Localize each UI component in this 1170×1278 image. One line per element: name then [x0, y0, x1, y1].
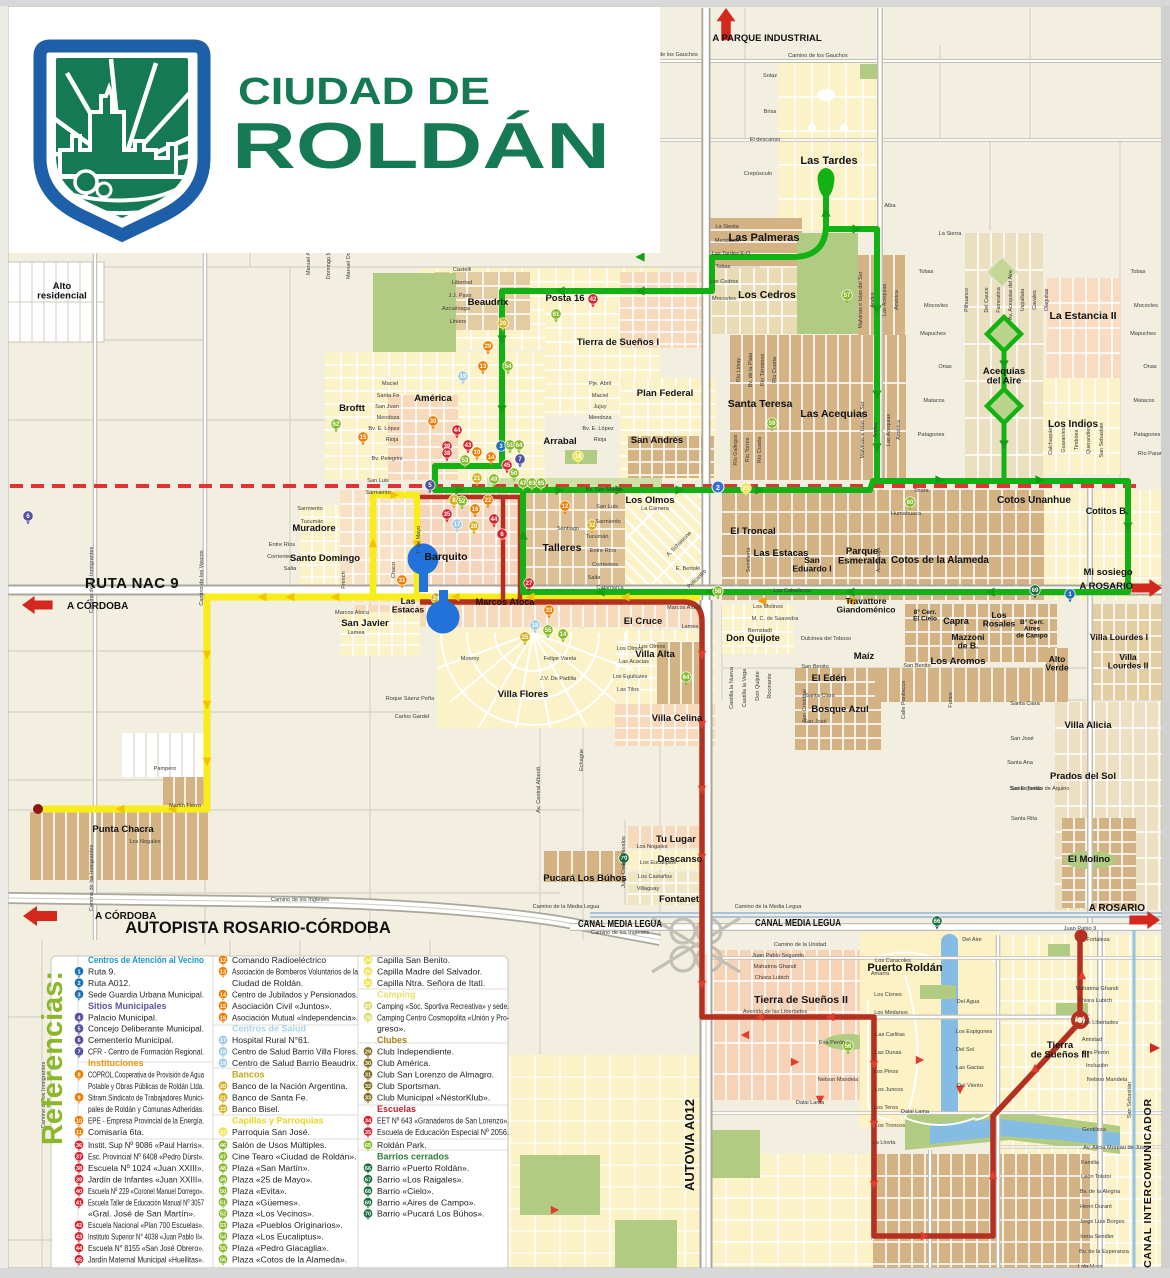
svg-text:15: 15 [360, 435, 367, 441]
svg-text:Chaco: Chaco [391, 562, 397, 578]
svg-text:Jardín de Infantes «Juan XXIII: Jardín de Infantes «Juan XXIII». [88, 1174, 204, 1184]
svg-text:Calchaquíes: Calchaquíes [1048, 425, 1054, 455]
svg-text:25: 25 [522, 635, 529, 641]
svg-text:13: 13 [220, 969, 226, 975]
svg-text:Escuela Nº 1024 «Juan XXIII».: Escuela Nº 1024 «Juan XXIII». [88, 1163, 204, 1173]
svg-text:37: 37 [76, 1154, 82, 1160]
svg-text:Centros de Salud: Centros de Salud [232, 1024, 306, 1034]
svg-text:Bv. Pelegrini: Bv. Pelegrini [372, 456, 403, 462]
svg-text:Cine Tearo «Ciudad de Roldán».: Cine Tearo «Ciudad de Roldán». [232, 1151, 357, 1161]
svg-text:Instit. Sup Nº 9086 «Paul Harr: Instit. Sup Nº 9086 «Paul Harris». [88, 1140, 204, 1150]
svg-text:16: 16 [472, 507, 479, 513]
svg-text:San Luis: San Luis [367, 478, 389, 484]
svg-text:1: 1 [77, 969, 80, 975]
svg-text:Club América.: Club América. [377, 1058, 431, 1068]
svg-text:Las Acequias: Las Acequias [800, 408, 867, 420]
svg-text:Acequiasdel Aire: Acequiasdel Aire [983, 366, 1025, 387]
svg-text:Monroy: Monroy [461, 656, 480, 662]
svg-text:66: 66 [365, 1166, 371, 1172]
svg-text:Santa Fe: Santa Fe [377, 393, 400, 399]
svg-text:Las Gacias: Las Gacias [956, 1065, 984, 1071]
svg-text:Bv. San Martín: Bv. San Martín [586, 487, 623, 493]
svg-text:Club Municipal «NéstorKlub».: Club Municipal «NéstorKlub». [377, 1092, 490, 1102]
svg-text:San Juan: San Juan [375, 404, 399, 410]
svg-text:20: 20 [220, 1084, 226, 1090]
svg-text:30: 30 [365, 1061, 371, 1067]
svg-text:Río Cuarta: Río Cuarta [772, 357, 778, 383]
svg-text:Alba: Alba [884, 203, 896, 209]
svg-text:Beaudrix: Beaudrix [468, 297, 509, 308]
svg-text:Pampero: Pampero [154, 766, 177, 772]
svg-text:Cotitos B.: Cotitos B. [1086, 506, 1129, 516]
svg-text:Fameatina: Fameatina [996, 287, 1002, 312]
svg-text:Bv. E. López: Bv. E. López [582, 426, 614, 432]
svg-text:Sitram.Sindicato de Trabajador: Sitram.Sindicato de Trabajadores Munici- [88, 1092, 204, 1102]
svg-text:Los Espigones: Los Espigones [956, 1029, 993, 1035]
svg-text:64: 64 [516, 443, 523, 449]
svg-text:Maciel: Maciel [592, 393, 608, 399]
svg-text:27: 27 [365, 1004, 371, 1010]
svg-text:San Sebastián: San Sebastián [1099, 422, 1105, 457]
svg-text:San Javier: San Javier [341, 618, 389, 629]
svg-text:COPROL.Cooperativa de Provisió: COPROL.Cooperativa de Provisión de Agua [88, 1070, 204, 1080]
svg-text:AUTOPISTA ROSARIO-CÓRDOBA: AUTOPISTA ROSARIO-CÓRDOBA [125, 918, 391, 937]
svg-text:17: 17 [454, 522, 461, 528]
svg-text:América: América [894, 290, 900, 310]
svg-text:Camping «Soc. Sportiva Recreat: Camping «Soc. Sportiva Recreativa» y sed… [377, 1001, 509, 1011]
svg-text:29: 29 [485, 344, 492, 350]
svg-text:Irena Sendler: Irena Sendler [1080, 1234, 1114, 1240]
svg-text:Plaza «San Martín».: Plaza «San Martín». [232, 1163, 310, 1173]
svg-text:La Llovta: La Llovta [873, 1140, 897, 1146]
svg-text:Lamea: Lamea [347, 630, 365, 636]
svg-text:San Cristóbal: San Cristóbal [802, 689, 808, 723]
svg-text:10: 10 [474, 450, 481, 456]
svg-text:Castilla la Vega: Castilla la Vega [742, 668, 748, 707]
svg-text:14: 14 [488, 455, 495, 461]
svg-text:Patagones: Patagones [918, 432, 945, 438]
svg-text:Río Gallegos: Río Gallegos [733, 434, 739, 465]
svg-text:El Cruce: El Cruce [624, 616, 663, 627]
svg-text:Camino de la Media Legua: Camino de la Media Legua [533, 904, 601, 910]
svg-text:Parroquia San José.: Parroquia San José. [232, 1127, 310, 1137]
svg-text:53: 53 [462, 458, 469, 464]
svg-text:44: 44 [454, 428, 461, 434]
svg-text:M. C. de Saavedra: M. C. de Saavedra [752, 616, 800, 622]
svg-text:65: 65 [365, 1143, 371, 1149]
svg-text:Tobas: Tobas [919, 269, 934, 275]
svg-text:Los Nogales: Los Nogales [129, 839, 160, 845]
svg-text:Camino de los Ingleses: Camino de los Ingleses [271, 897, 329, 903]
svg-text:53: 53 [220, 1223, 226, 1229]
svg-text:Av. Acequias del Aire: Av. Acequias del Aire [1008, 270, 1014, 320]
svg-text:Camping: Camping [377, 989, 416, 999]
svg-text:69: 69 [1032, 588, 1039, 594]
svg-text:Cotos de la Alameda: Cotos de la Alameda [891, 555, 989, 566]
svg-text:26: 26 [365, 981, 371, 987]
svg-text:Talleres: Talleres [543, 542, 582, 554]
svg-text:Cementerio Municipal.: Cementerio Municipal. [88, 1035, 174, 1045]
svg-text:Del Sol: Del Sol [956, 1047, 974, 1053]
svg-text:Dalai Lama: Dalai Lama [796, 1100, 825, 1106]
svg-text:44: 44 [491, 517, 498, 523]
svg-text:pales de Roldán y Comunas Adhe: pales de Roldán y Comunas Adheridas. [88, 1104, 204, 1114]
svg-text:Santa Clara: Santa Clara [805, 693, 835, 699]
svg-text:Del Aire: Del Aire [962, 937, 982, 943]
svg-text:Posta 16: Posta 16 [545, 293, 584, 304]
svg-text:Los Cedros: Los Cedros [738, 289, 796, 301]
svg-text:Bosque Azul: Bosque Azul [811, 704, 868, 715]
svg-text:12: 12 [220, 958, 226, 964]
svg-text:Arrabal: Arrabal [543, 436, 576, 447]
svg-text:Villa Lourdes I: Villa Lourdes I [1090, 632, 1148, 642]
svg-text:Mocovíes: Mocovíes [1134, 303, 1158, 309]
svg-text:San Andrés: San Andrés [631, 435, 683, 446]
svg-text:25: 25 [365, 969, 371, 975]
svg-text:27: 27 [526, 581, 533, 587]
svg-text:RUTA NAC 9: RUTA NAC 9 [85, 575, 179, 592]
svg-text:Eva Perón: Eva Perón [1083, 1050, 1109, 1056]
svg-text:66: 66 [934, 919, 941, 925]
svg-text:Marcos Atoca: Marcos Atoca [335, 610, 370, 616]
svg-text:La Cámera: La Cámera [641, 506, 670, 512]
svg-text:Funes: Funes [948, 692, 954, 708]
svg-text:Barrio «Los Raigales».: Barrio «Los Raigales». [377, 1174, 464, 1184]
svg-text:Camping Centro Cosmopolita «Un: Camping Centro Cosmopolita «Unión y Pro- [377, 1012, 509, 1022]
svg-text:Bancos: Bancos [232, 1070, 265, 1080]
svg-text:Don Quijote: Don Quijote [726, 633, 780, 644]
svg-text:Nelson Mandela: Nelson Mandela [1087, 1077, 1128, 1083]
svg-text:8: 8 [77, 1073, 80, 1079]
svg-text:Castilla la Nueva: Castilla la Nueva [729, 666, 735, 709]
svg-text:Entre Ríos: Entre Ríos [269, 542, 296, 548]
svg-text:51: 51 [507, 443, 514, 449]
svg-text:Río Limay: Río Limay [736, 358, 742, 383]
svg-text:Ciudad de Roldán.: Ciudad de Roldán. [232, 978, 303, 988]
svg-text:Asociación de Bomberos Volunta: Asociación de Bomberos Voluntarios de la [232, 966, 358, 976]
svg-text:Capra: Capra [943, 616, 970, 626]
svg-text:Castelli: Castelli [453, 267, 471, 273]
svg-text:Asociación Civil «Juntos».: Asociación Civil «Juntos». [232, 1001, 332, 1011]
svg-text:Las Acequias: Las Acequias [882, 284, 888, 316]
svg-text:Banco de la Nación Argentina.: Banco de la Nación Argentina. [232, 1081, 348, 1091]
svg-text:26: 26 [500, 321, 507, 327]
svg-text:Las Tardes E-O: Las Tardes E-O [712, 251, 751, 257]
svg-text:50: 50 [511, 471, 518, 477]
svg-text:AUTOVIA A012: AUTOVIA A012 [682, 1099, 697, 1191]
svg-text:32: 32 [365, 1084, 371, 1090]
svg-text:58: 58 [715, 589, 722, 595]
svg-text:Río Cuarta: Río Cuarta [757, 437, 763, 463]
svg-text:CANAL INTERCOMUNICADOR: CANAL INTERCOMUNICADOR [1142, 1098, 1154, 1268]
svg-text:Esc. Provincial Nº 6408 «Pedro: Esc. Provincial Nº 6408 «Pedro Dürst». [88, 1151, 204, 1161]
svg-text:Comisaría 6ta.: Comisaría 6ta. [88, 1127, 144, 1137]
svg-text:Los Aromos: Los Aromos [930, 656, 985, 667]
svg-text:Olaguitas: Olaguitas [1044, 288, 1050, 311]
svg-text:Carlos Gardel: Carlos Gardel [395, 714, 430, 720]
svg-text:Las Tilos: Las Tilos [617, 687, 639, 693]
svg-text:48: 48 [220, 1166, 226, 1172]
svg-text:Capillas y Parroquias: Capillas y Parroquias [232, 1115, 324, 1125]
svg-text:Los Troncos: Los Troncos [875, 1123, 906, 1129]
svg-text:Juan Pablo Segundo: Juan Pablo Segundo [752, 953, 804, 959]
svg-text:greso».: greso». [377, 1024, 406, 1034]
svg-text:19: 19 [220, 1061, 226, 1067]
svg-text:CANAL MEDIA LEGUA: CANAL MEDIA LEGUA [755, 917, 841, 929]
svg-text:Mi sosiego: Mi sosiego [1083, 567, 1132, 578]
svg-text:47: 47 [220, 1154, 226, 1160]
svg-text:45: 45 [76, 1258, 82, 1264]
svg-text:8° Cerr.El Cielo: 8° Cerr.El Cielo [913, 608, 937, 623]
svg-text:Escuela Nº 229 «Coronel Manuel: Escuela Nº 229 «Coronel Manuel Dorrego». [88, 1186, 204, 1196]
svg-text:Onas: Onas [938, 364, 952, 370]
svg-text:Roldán Park.: Roldán Park. [377, 1140, 427, 1150]
svg-text:36: 36 [76, 1143, 82, 1149]
svg-text:Jorge Luis Borges: Jorge Luis Borges [1079, 1219, 1124, 1225]
svg-text:Plaza «Güemes».: Plaza «Güemes». [232, 1197, 300, 1207]
svg-text:Mapuches: Mapuches [1130, 331, 1156, 337]
svg-text:Rioja: Rioja [594, 437, 608, 443]
svg-text:Barrio «Pucará Los Búhos».: Barrio «Pucará Los Búhos». [377, 1209, 485, 1219]
svg-text:Centro de Salud Barrio Beaudri: Centro de Salud Barrio Beaudrix. [232, 1058, 358, 1068]
svg-text:54: 54 [505, 364, 512, 370]
svg-text:Los Nogales: Los Nogales [636, 844, 667, 850]
svg-text:Broftt: Broftt [339, 403, 366, 414]
svg-text:Asociación Mutual «Independenc: Asociación Mutual «Independencia». [232, 1012, 358, 1022]
svg-text:Echagüe: Echagüe [579, 749, 585, 771]
svg-text:Potable y Obras Públicas de Ro: Potable y Obras Públicas de Roldán Ltda. [88, 1081, 204, 1091]
svg-text:Club Independiente.: Club Independiente. [377, 1047, 454, 1057]
svg-text:30: 30 [430, 419, 437, 425]
svg-text:Clubes: Clubes [377, 1035, 407, 1045]
svg-text:5: 5 [77, 1027, 80, 1033]
svg-text:Inclusión: Inclusión [1086, 1063, 1108, 1069]
svg-text:Andes: Andes [870, 292, 876, 308]
svg-text:2: 2 [77, 981, 80, 987]
svg-text:51: 51 [220, 1200, 226, 1206]
svg-text:Tobas: Tobas [716, 264, 731, 270]
svg-text:Los Teros: Los Teros [874, 1105, 898, 1111]
svg-text:San Benito: San Benito [801, 664, 828, 670]
svg-text:Camino de la Media Legua: Camino de la Media Legua [735, 904, 803, 910]
svg-text:French: French [341, 571, 347, 588]
svg-text:46: 46 [220, 1143, 226, 1149]
svg-text:7: 7 [77, 1050, 80, 1056]
svg-text:Las Libertades: Las Libertades [1082, 1020, 1119, 1026]
svg-text:Sarmiento: Sarmiento [365, 490, 391, 496]
svg-text:Juan Pablo II: Juan Pablo II [1064, 926, 1097, 932]
svg-text:55: 55 [220, 1246, 226, 1252]
svg-text:52: 52 [459, 499, 466, 505]
svg-text:Av. Alicia Moreau de Justo: Av. Alicia Moreau de Justo [1083, 1145, 1148, 1151]
svg-text:Punta Chacra: Punta Chacra [92, 824, 154, 835]
svg-text:Matacos: Matacos [923, 398, 944, 404]
svg-text:Fontanet: Fontanet [659, 894, 700, 905]
svg-text:Corrientes: Corrientes [267, 554, 293, 560]
svg-text:Bernstadt: Bernstadt [748, 628, 772, 634]
svg-text:El descanso: El descanso [750, 137, 780, 143]
svg-text:Querandíes: Querandíes [1086, 426, 1092, 454]
svg-text:Matacos: Matacos [1133, 398, 1154, 404]
svg-text:40: 40 [76, 1189, 82, 1195]
svg-text:Rioja: Rioja [386, 437, 400, 443]
svg-text:Centro de Salud Barrio Villa F: Centro de Salud Barrio Villa Flores. [232, 1047, 358, 1057]
svg-text:San Benito: San Benito [903, 663, 930, 669]
svg-text:Sitios Municipales: Sitios Municipales [88, 1001, 167, 1011]
svg-text:Calle Panllacca: Calle Panllacca [901, 680, 907, 719]
svg-text:Club San Lorenzo de Almagro.: Club San Lorenzo de Almagro. [377, 1070, 494, 1080]
svg-text:Azcuénaga: Azcuénaga [442, 306, 471, 312]
svg-text:Henri Durant: Henri Durant [1080, 1204, 1112, 1210]
svg-text:Guaraníes: Guaraníes [1061, 427, 1067, 452]
svg-text:Instituto Superior N° 4038 «Ju: Instituto Superior N° 4038 «Juan Pablo I… [88, 1232, 204, 1242]
svg-text:Villa Flores: Villa Flores [498, 689, 549, 700]
svg-text:Andes: Andes [873, 422, 879, 438]
svg-text:León Tolstoi: León Tolstoi [1081, 1174, 1111, 1180]
svg-text:57: 57 [844, 293, 851, 299]
svg-text:34: 34 [365, 1118, 372, 1124]
svg-text:56: 56 [845, 1044, 852, 1050]
svg-text:Hospital Rural N°61.: Hospital Rural N°61. [232, 1035, 310, 1045]
svg-text:Onas: Onas [1143, 364, 1157, 370]
svg-text:23: 23 [743, 486, 750, 492]
svg-text:Jujuy: Jujuy [593, 404, 606, 410]
svg-text:Capilla Ntra. Señora de Itatí.: Capilla Ntra. Señora de Itatí. [377, 978, 485, 988]
svg-text:62: 62 [333, 422, 340, 428]
svg-text:Barquito: Barquito [424, 551, 467, 563]
svg-text:Mendoza: Mendoza [376, 415, 400, 421]
svg-text:Plaza «Pedro Giacaglia».: Plaza «Pedro Giacaglia». [232, 1243, 329, 1253]
svg-text:59: 59 [769, 421, 776, 427]
svg-text:61: 61 [553, 312, 560, 318]
svg-text:Ruta A012.: Ruta A012. [88, 978, 131, 988]
svg-text:Tucumán: Tucumán [300, 519, 323, 525]
svg-text:Río Torres: Río Torres [745, 437, 751, 462]
svg-text:Los Juncos: Los Juncos [875, 1087, 903, 1093]
svg-text:Santa Ana: Santa Ana [1007, 760, 1034, 766]
svg-text:Bv. de la Esperanza: Bv. de la Esperanza [1079, 1249, 1130, 1255]
svg-text:29: 29 [365, 1050, 371, 1056]
svg-text:Los Caballeros: Los Caballeros [773, 588, 811, 594]
svg-text:Comando Radioeléctrico: Comando Radioeléctrico [232, 955, 326, 965]
svg-text:19: 19 [460, 374, 467, 380]
svg-text:La Estancia II: La Estancia II [1049, 310, 1116, 322]
svg-text:Santa Clara: Santa Clara [1010, 701, 1040, 707]
svg-text:Bv. de la Plata: Bv. de la Plata [748, 353, 754, 387]
svg-text:55: 55 [545, 628, 552, 634]
svg-text:1° de Mayo: 1° de Mayo [416, 526, 422, 554]
svg-text:23: 23 [220, 1130, 226, 1136]
svg-text:70: 70 [365, 1212, 371, 1218]
svg-text:Santa Rita: Santa Rita [1011, 816, 1038, 822]
svg-text:Escuela de Educación Especial: Escuela de Educación Especial Nº 2056. [377, 1127, 509, 1137]
svg-text:33: 33 [546, 608, 553, 614]
svg-text:49: 49 [220, 1177, 226, 1183]
svg-text:Aconquija: Aconquija [876, 547, 882, 572]
svg-text:Río Términos: Río Términos [760, 354, 766, 387]
svg-text:14: 14 [220, 992, 227, 998]
svg-text:Maciel: Maciel [382, 381, 398, 387]
svg-text:18: 18 [532, 623, 539, 629]
svg-text:52: 52 [220, 1212, 226, 1218]
svg-text:Tucumán: Tucumán [585, 534, 608, 540]
svg-text:Tierra de Sueños II: Tierra de Sueños II [754, 994, 848, 1006]
svg-text:Los Olmos: Los Olmos [625, 495, 674, 506]
svg-text:14: 14 [560, 632, 567, 638]
svg-text:Liniers: Liniers [450, 319, 467, 325]
svg-text:Palacio Municipal.: Palacio Municipal. [88, 1012, 157, 1022]
svg-text:Santa Teresa: Santa Teresa [728, 398, 793, 410]
svg-text:Santo Domingo: Santo Domingo [290, 553, 360, 564]
svg-text:17: 17 [220, 1038, 226, 1044]
svg-text:Sarmiento: Sarmiento [595, 519, 621, 525]
svg-text:Referencias:: Referencias: [37, 971, 69, 1145]
svg-text:Solaz: Solaz [763, 73, 777, 79]
svg-text:Brisa: Brisa [764, 109, 778, 115]
svg-text:Los Eucaliptos: Los Eucaliptos [640, 860, 677, 866]
svg-text:56: 56 [220, 1258, 226, 1264]
svg-text:50: 50 [220, 1189, 226, 1195]
svg-text:San José: San José [1010, 736, 1033, 742]
svg-text:18: 18 [575, 454, 582, 460]
svg-text:Chiara Lubich: Chiara Lubich [1078, 998, 1113, 1004]
svg-text:Plaza «Cotos de la Alameda».: Plaza «Cotos de la Alameda». [232, 1255, 347, 1265]
svg-text:Los Médanos: Los Médanos [874, 1010, 908, 1016]
svg-text:Santiago: Santiago [557, 526, 579, 532]
svg-text:Los Cisnes: Los Cisnes [874, 992, 902, 998]
svg-text:22: 22 [485, 498, 492, 504]
svg-text:41: 41 [76, 1200, 82, 1206]
svg-text:Los Olmos: Los Olmos [639, 644, 666, 650]
svg-text:18: 18 [220, 1050, 226, 1056]
svg-text:Bv. de la Alegría: Bv. de la Alegría [1080, 1189, 1121, 1195]
svg-text:A CÓRDOBA: A CÓRDOBA [67, 599, 128, 612]
svg-text:64: 64 [683, 675, 690, 681]
svg-text:15: 15 [220, 1004, 226, 1010]
svg-text:Las Acacias: Las Acacias [619, 659, 649, 665]
svg-text:Camino de los Vascos: Camino de los Vascos [199, 550, 205, 605]
svg-text:Avenida de las Libertades: Avenida de las Libertades [743, 1009, 807, 1015]
svg-text:Cavales: Cavales [1032, 290, 1038, 310]
svg-text:EET Nº 643 «Granaderos de San: EET Nº 643 «Granaderos de San Lorenzo». [377, 1115, 509, 1125]
svg-text:EPE - Empresa Provincial de la: EPE - Empresa Provincial de la Energía. [88, 1115, 204, 1125]
svg-text:Corrientes: Corrientes [592, 562, 618, 568]
svg-text:31: 31 [365, 1073, 371, 1079]
svg-text:Uspallata: Uspallata [1020, 289, 1026, 311]
svg-text:América: América [896, 420, 902, 440]
svg-text:Roque Sáenz Peña: Roque Sáenz Peña [386, 696, 435, 702]
svg-text:12: 12 [562, 504, 569, 510]
svg-text:21: 21 [220, 1095, 226, 1101]
svg-text:65: 65 [538, 481, 545, 487]
svg-text:2: 2 [716, 485, 720, 492]
svg-text:Plaza «Evita».: Plaza «Evita». [232, 1186, 287, 1196]
svg-text:Semillería: Semillería [746, 547, 752, 573]
svg-text:Los Pinos: Los Pinos [874, 1069, 899, 1075]
svg-text:69: 69 [365, 1200, 371, 1206]
svg-text:Mapuches: Mapuches [920, 331, 946, 337]
svg-text:Crepúsculo: Crepúsculo [744, 171, 772, 177]
svg-text:13: 13 [480, 364, 487, 370]
svg-text:Centro de Jubilados y Pensiona: Centro de Jubilados y Pensionados. [232, 989, 358, 999]
svg-text:La Sierra: La Sierra [939, 231, 963, 237]
svg-text:Plaza «Los Vecinos».: Plaza «Los Vecinos». [232, 1209, 314, 1219]
svg-text:El Troncal: El Troncal [730, 526, 775, 537]
svg-text:Prados del Sol: Prados del Sol [1050, 771, 1116, 782]
svg-text:Mocovíes: Mocovíes [924, 303, 948, 309]
svg-text:Dulcinea del Toboso: Dulcinea del Toboso [801, 636, 851, 642]
svg-text:63: 63 [529, 481, 536, 487]
